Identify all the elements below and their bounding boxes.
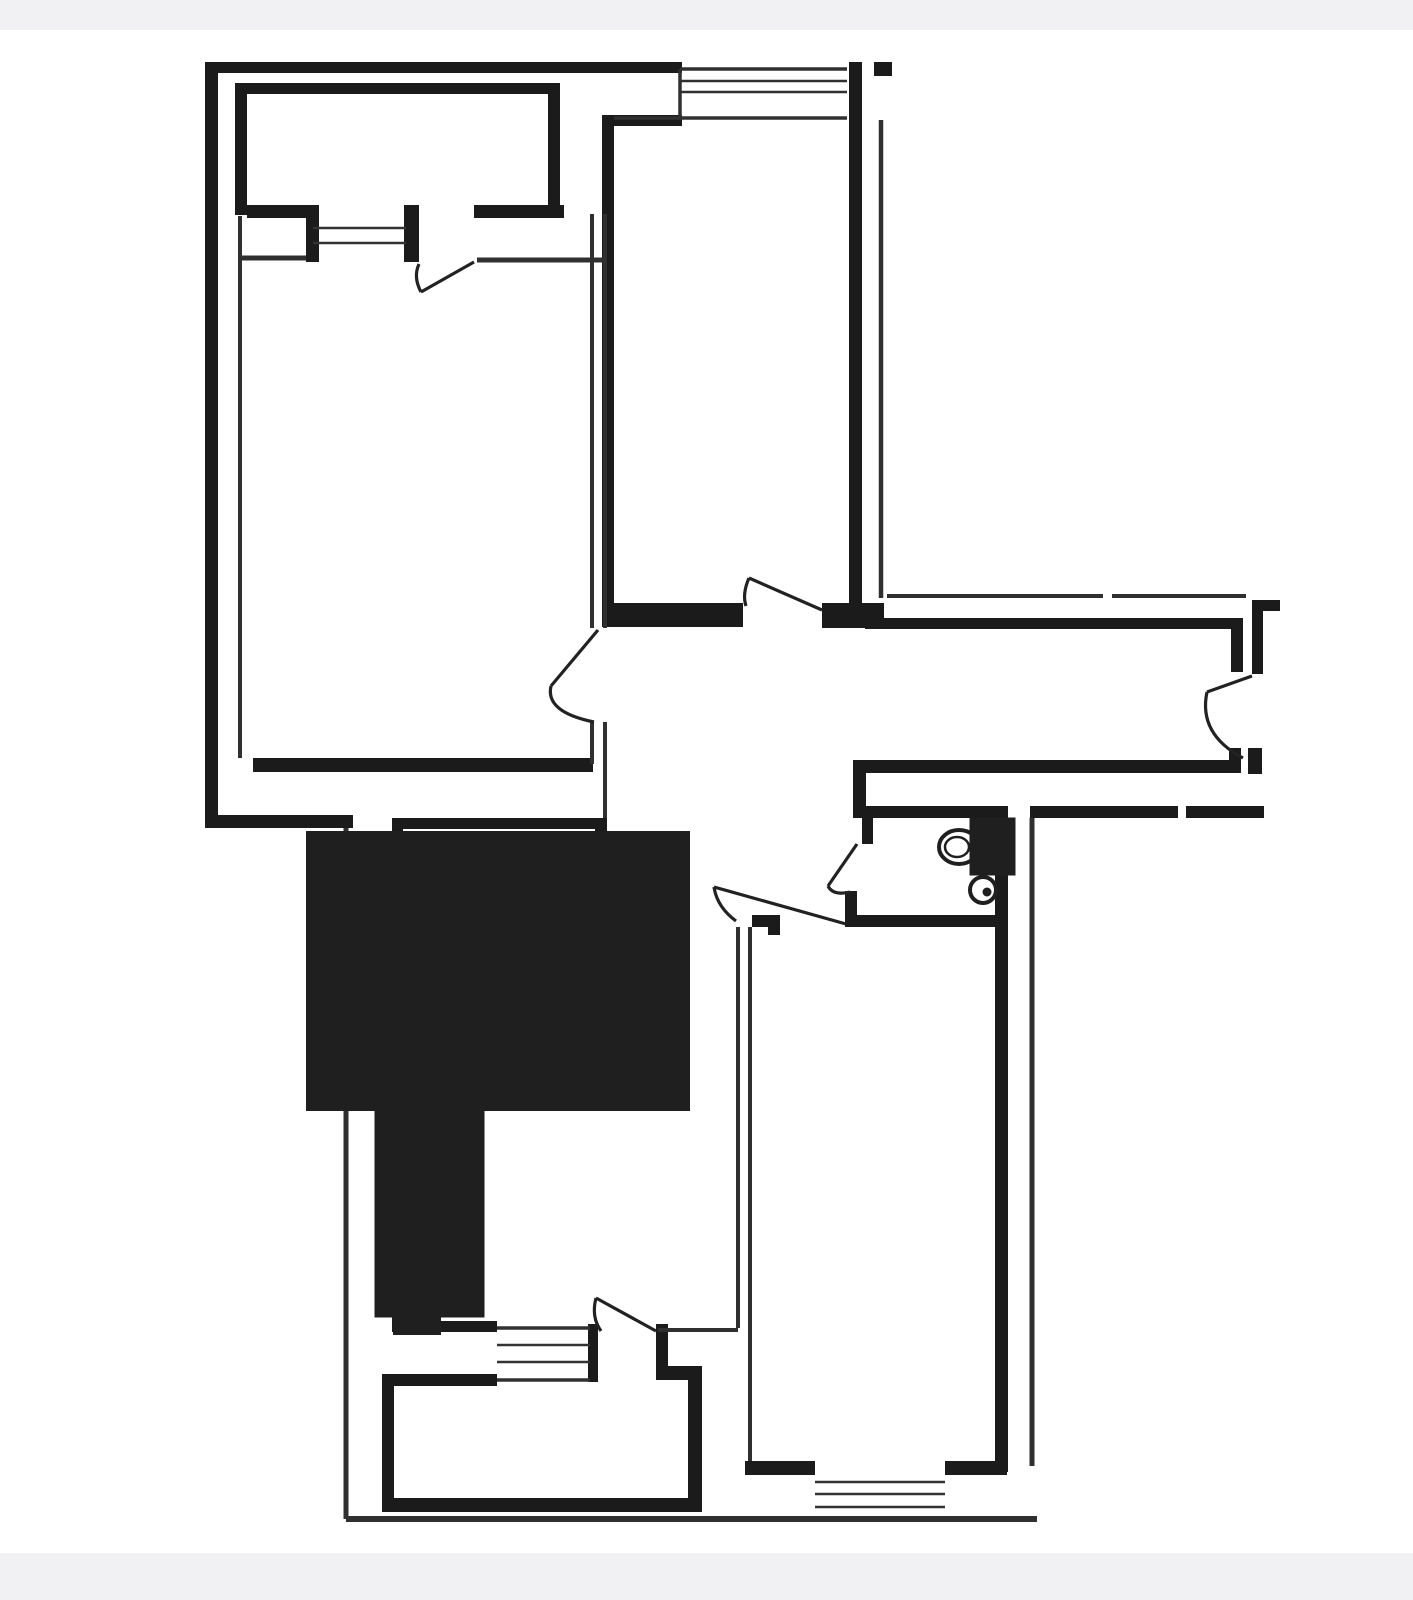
toilet-tank <box>981 829 1004 864</box>
wc-door-arc <box>828 886 850 893</box>
entrance-bottom-jamb <box>1248 748 1262 774</box>
room2-bottom-wall-right <box>945 1461 1007 1475</box>
balcony-top-left-wall <box>235 83 247 215</box>
sink-star-center <box>423 1125 431 1133</box>
walls <box>205 62 1280 1512</box>
balcony-top-door-leaf <box>421 262 474 292</box>
leftroom-window-jamb-a <box>306 205 319 262</box>
wc-bottom-wall <box>845 915 1007 927</box>
room2-bottom-wall-left <box>745 1461 815 1475</box>
balcony-top-door-arc <box>416 264 421 292</box>
kitchen-window-jamb <box>588 1324 598 1382</box>
kitchen-shelf-box <box>411 1064 441 1091</box>
leftroom-door-leaf <box>551 630 598 686</box>
room2-door-jamb <box>768 915 780 935</box>
balcony-top-top-wall <box>235 83 560 94</box>
balcony-bottom-top-seg <box>382 1374 497 1386</box>
wc-door-top-jamb <box>862 806 873 844</box>
wc-door-leaf <box>828 844 857 886</box>
wc-door-bottom-stub <box>845 891 857 927</box>
outer-bottom-left-wall <box>205 815 353 828</box>
entrance-door-leaf <box>1207 676 1252 692</box>
bathroom-top-wall <box>392 818 607 829</box>
balcony-bottom-bottom-wall <box>382 1498 702 1512</box>
wall-below-corridor-b <box>1186 806 1264 818</box>
entrance-top-jamb <box>1252 600 1263 674</box>
topmid-door-leaf <box>749 578 822 610</box>
top-right-tick <box>874 62 892 76</box>
floor-plan-page <box>0 0 1413 1600</box>
leftroom-door-arc <box>550 686 594 722</box>
outer-left-wall <box>205 62 218 828</box>
corridor-top-wall <box>865 618 1243 629</box>
balcony-top-right-wall <box>548 83 560 215</box>
east-wall-lower <box>995 806 1008 1472</box>
balcony-bottom-left-wall <box>382 1374 394 1512</box>
bathroom-sink-dot <box>413 887 421 895</box>
balcony-bottom-door-leaf <box>596 1298 656 1331</box>
kitchen-cabinet <box>405 1289 429 1323</box>
wall-below-corridor-a <box>1030 806 1178 818</box>
corridor-bottom-wall <box>853 760 1241 773</box>
wc-sink-dot <box>983 888 992 897</box>
entrance-top-tick <box>1252 600 1280 611</box>
fixtures <box>402 829 1004 1323</box>
photo-margin-bottom <box>0 1553 1413 1600</box>
floor-plan-drawing <box>0 0 1413 1600</box>
doors <box>416 262 1252 1331</box>
balcony-parapet-left-seg <box>247 205 313 218</box>
balcony-parapet-right-seg <box>474 205 564 218</box>
outer-top-wall <box>205 62 682 73</box>
topmid-door-arc <box>745 578 749 606</box>
bathtub-drain <box>428 965 440 977</box>
topmid-bottom-wall-left <box>602 603 743 627</box>
corridor-top-hook <box>1231 618 1243 672</box>
balcony-bottom-right-wall <box>688 1366 702 1512</box>
photo-margin-top <box>0 0 1413 30</box>
leftroom-bottom-wall <box>253 758 593 772</box>
wc-top-wall <box>862 806 1007 818</box>
topmid-east-wall <box>849 62 862 607</box>
leftroom-window-jamb-b <box>404 205 419 262</box>
toilet-bowl-inner <box>945 837 969 857</box>
